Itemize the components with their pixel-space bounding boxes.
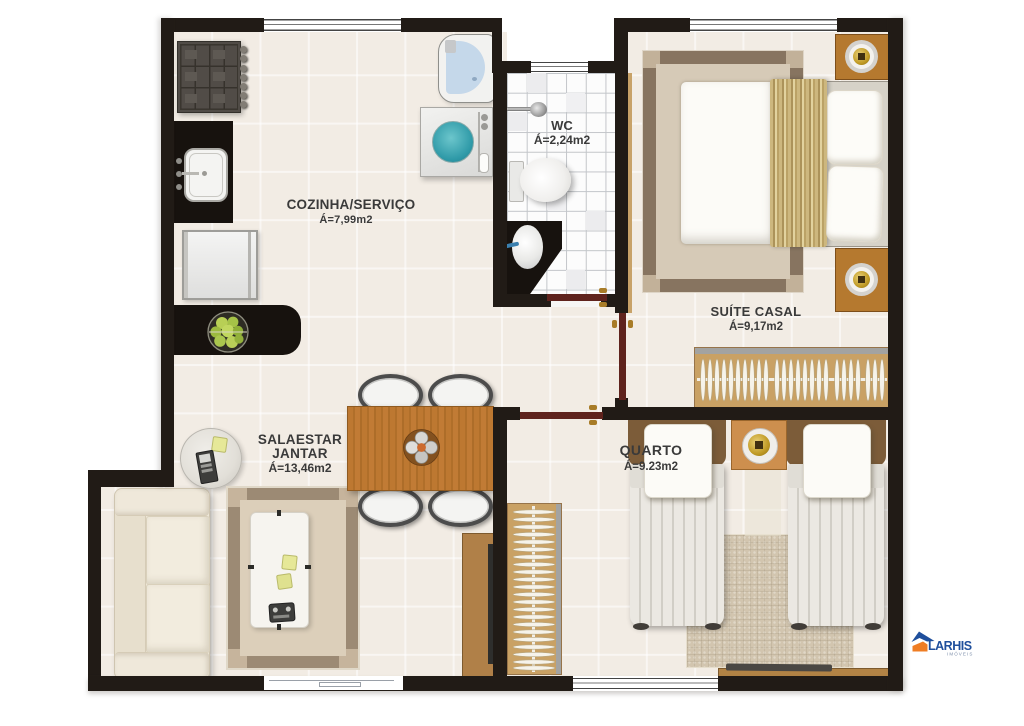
svg-text:IMÓVEIS: IMÓVEIS [947, 651, 973, 657]
